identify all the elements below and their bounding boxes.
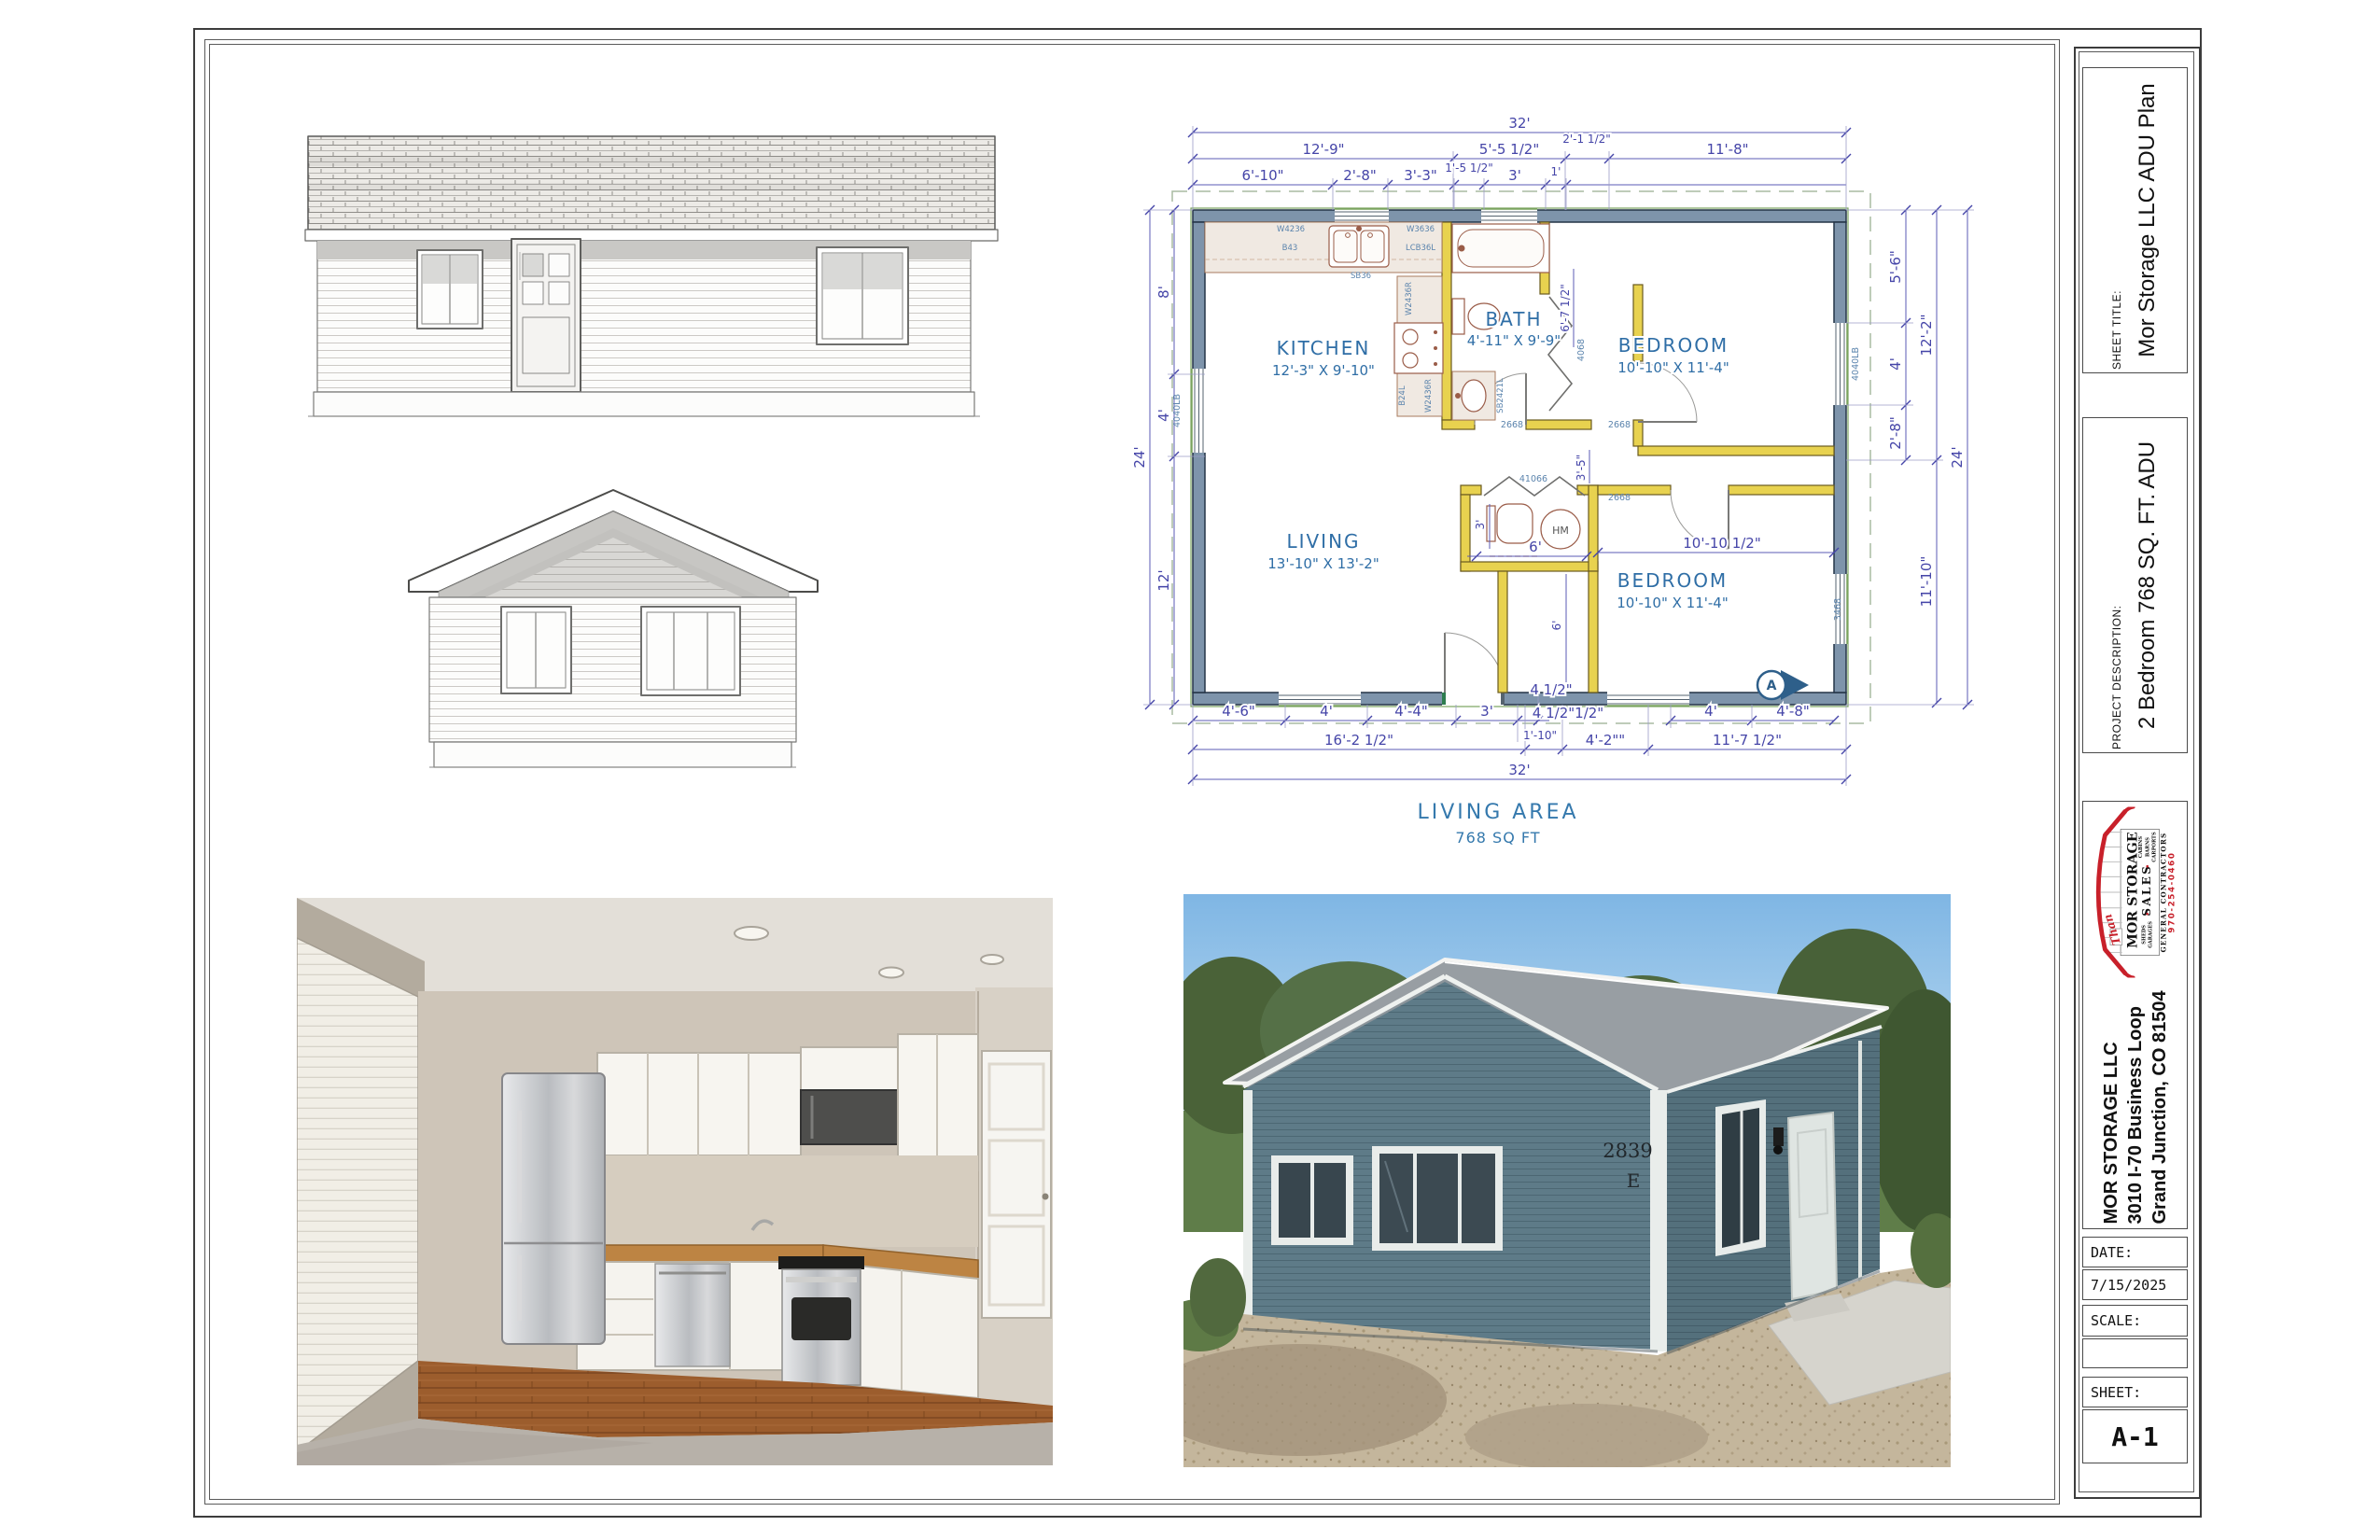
door-label: 2668 — [1501, 420, 1523, 430]
scale-label-box: SCALE: — [2082, 1305, 2188, 1337]
window-label: 41066 — [1519, 474, 1547, 484]
window-label: 3468 — [1833, 598, 1843, 621]
dim-label: 1'-5 1/2" — [1445, 161, 1493, 175]
company-box: MOR STORAGE LLC 3010 I-70 Business Loop … — [2082, 801, 2188, 1229]
sheet-label: SHEET: — [2083, 1378, 2187, 1407]
sheet-title-label: SHEET TITLE: — [2110, 71, 2123, 370]
dim-label: 5'-6" — [1887, 250, 1904, 284]
dim-label: 11'-8" — [1706, 141, 1748, 158]
room-label-bath: BATH — [1485, 308, 1542, 330]
exterior-windows — [1192, 209, 1847, 706]
logo-product: SHEDS — [2141, 924, 2147, 944]
logo-phone: 970-254-0460 — [2167, 851, 2177, 932]
project-description-box: PROJECT DESCRIPTION: 2 Bedroom 768 SQ. F… — [2082, 417, 2188, 753]
dim-label: 4 1/2"1/2" — [1533, 705, 1603, 721]
room-label-kitchen: KITCHEN — [1277, 337, 1371, 359]
house-address-unit: E — [1627, 1169, 1641, 1192]
dim-label: 2'-8" — [1343, 167, 1377, 184]
cabinet-label: B43 — [1282, 244, 1298, 253]
window-label: 4040LB — [1172, 394, 1183, 427]
water-heater-label: HM — [1552, 525, 1569, 537]
company-address-line1: 3010 I-70 Business Loop — [2123, 990, 2148, 1224]
front-elevation-drawing — [305, 136, 998, 416]
dim-label: 10'-10 1/2" — [1683, 535, 1761, 552]
plan-caption-title: LIVING AREA — [1417, 801, 1578, 824]
dim-label: 4' — [1155, 409, 1172, 422]
room-size-living: 13'-10" X 13'-2" — [1267, 555, 1379, 572]
scale-label: SCALE: — [2083, 1306, 2187, 1336]
dim-label: 8' — [1155, 286, 1172, 299]
dim-label: 2'-1 1/2" — [1562, 133, 1611, 146]
date-label-box: DATE: — [2082, 1237, 2188, 1267]
sheet-graphics: HM 32' 12'-9" 5'-5 1/2" — [0, 0, 2380, 1540]
window-label: 4068 — [1576, 339, 1587, 361]
dim-label: 6' — [1550, 621, 1563, 631]
project-description-label: PROJECT DESCRIPTION: — [2110, 421, 2123, 749]
date-value: 7/15/2025 — [2083, 1270, 2187, 1299]
dim-label: 1' — [1551, 165, 1561, 178]
dim-label: 4' — [1704, 703, 1717, 720]
room-label-bedroom2: BEDROOM — [1617, 569, 1728, 592]
dim-label: 1'-10" — [1523, 729, 1557, 742]
company-address: MOR STORAGE LLC 3010 I-70 Business Loop … — [2099, 990, 2172, 1224]
exterior-walls — [1193, 210, 1846, 705]
cabinet-label: LCB36L — [1406, 244, 1435, 253]
logo-product: CABINS — [2138, 835, 2144, 858]
dim-label: 3'-3" — [1404, 167, 1437, 184]
side-elevation-drawing — [409, 490, 818, 767]
dim-label: 4'-6" — [1222, 703, 1255, 720]
room-label-bedroom1: BEDROOM — [1618, 334, 1729, 357]
cabinet-label: W2436R — [1424, 379, 1434, 413]
dim-label: 4' — [1887, 357, 1904, 371]
drawing-sheet: HM 32' 12'-9" 5'-5 1/2" — [0, 0, 2380, 1540]
dim-label: 3' — [1480, 703, 1493, 720]
dim-label: 12'-2" — [1918, 314, 1935, 356]
logo-product: BARNS — [2145, 836, 2150, 856]
sheet-number-box: A-1 — [2082, 1409, 2188, 1463]
dim-label: 4'-8" — [1776, 703, 1810, 720]
company-name: MOR STORAGE LLC — [2099, 990, 2123, 1224]
dim-label: 24' — [1949, 446, 1966, 468]
company-logo: Than MOR STORAGE SALES SHEDS GARAGES CAB… — [2085, 806, 2186, 977]
dim-label: 4'-2"" — [1586, 732, 1625, 749]
dim-label: 3' — [1474, 520, 1487, 530]
sheet-label-box: SHEET: — [2082, 1377, 2188, 1407]
cabinet-label: W2436R — [1405, 282, 1414, 315]
cabinet-label: W4236 — [1277, 225, 1305, 234]
date-value-box: 7/15/2025 — [2082, 1269, 2188, 1300]
kitchen-photo — [297, 898, 1053, 1512]
dim-label: 3'-5" — [1575, 455, 1588, 481]
dim-label: 5'-5 1/2" — [1479, 141, 1539, 158]
dim-label: 4'-4" — [1394, 703, 1428, 720]
dim-label: 4' — [1320, 703, 1333, 720]
room-size-bedroom1: 10'-10" X 11'-4" — [1617, 359, 1729, 376]
dim-label: 32' — [1508, 762, 1530, 778]
logo-line3: GENERAL CONTRACTORS — [2159, 832, 2167, 952]
sheet-title-box: SHEET TITLE: Mor Storage LLC ADU Plan — [2082, 67, 2188, 373]
date-label: DATE: — [2083, 1238, 2187, 1267]
dim-label: 11'-10" — [1918, 556, 1935, 608]
sheet-number: A-1 — [2083, 1410, 2187, 1463]
door-label: 2668 — [1608, 493, 1631, 503]
scale-value — [2083, 1339, 2187, 1367]
section-marker-letter: A — [1767, 679, 1777, 693]
door-label: 2668 — [1608, 420, 1631, 430]
room-size-bedroom2: 10'-10" X 11'-4" — [1617, 595, 1729, 611]
project-description-value: 2 Bedroom 768 SQ. FT. ADU — [2135, 421, 2161, 749]
plan-caption-area: 768 SQ FT — [1455, 829, 1540, 847]
dim-label: 12' — [1155, 569, 1172, 591]
room-size-bath: 4'-11" X 9'-9" — [1467, 332, 1561, 349]
dim-label: 6' — [1529, 539, 1542, 555]
company-address-line2: Grand Junction, CO 81504 — [2148, 990, 2172, 1224]
scale-value-box — [2082, 1338, 2188, 1368]
dim-label: 6'-10" — [1241, 167, 1283, 184]
cabinet-label: B24L — [1398, 385, 1407, 406]
room-label-living: LIVING — [1286, 530, 1360, 553]
room-size-kitchen: 12'-3" X 9'-10" — [1272, 362, 1375, 379]
entry-door — [1442, 633, 1505, 706]
dim-label: 16'-2 1/2" — [1324, 732, 1393, 749]
window-label: 4040LB — [1851, 347, 1861, 381]
house-address-number: 2839 — [1603, 1140, 1652, 1162]
cabinet-label: SB36 — [1351, 272, 1371, 281]
logo-product: CARPORTS — [2151, 831, 2157, 861]
dim-label: 4 1/2" — [1530, 681, 1572, 698]
dim-label: 3' — [1508, 167, 1521, 184]
dim-label: 24' — [1131, 446, 1148, 468]
dim-label: 2'-8" — [1887, 416, 1904, 450]
interior-walls — [1442, 222, 1834, 693]
logo-product: GARAGES — [2148, 920, 2153, 947]
exterior-photo: 2839 E — [1148, 894, 1981, 1471]
cabinet-label: SB2421L — [1496, 378, 1505, 413]
dim-label: 32' — [1508, 115, 1530, 132]
cabinet-label: W3636 — [1407, 225, 1435, 234]
logo-line2: SALES — [2139, 863, 2152, 916]
dim-label: 6'-7 1/2" — [1559, 284, 1572, 332]
dim-label: 11'-7 1/2" — [1713, 732, 1782, 749]
floor-plan-drawing: HM 32' 12'-9" 5'-5 1/2" — [1131, 115, 1974, 847]
sheet-title-value: Mor Storage LLC ADU Plan — [2135, 71, 2161, 370]
dim-label: 12'-9" — [1302, 141, 1344, 158]
